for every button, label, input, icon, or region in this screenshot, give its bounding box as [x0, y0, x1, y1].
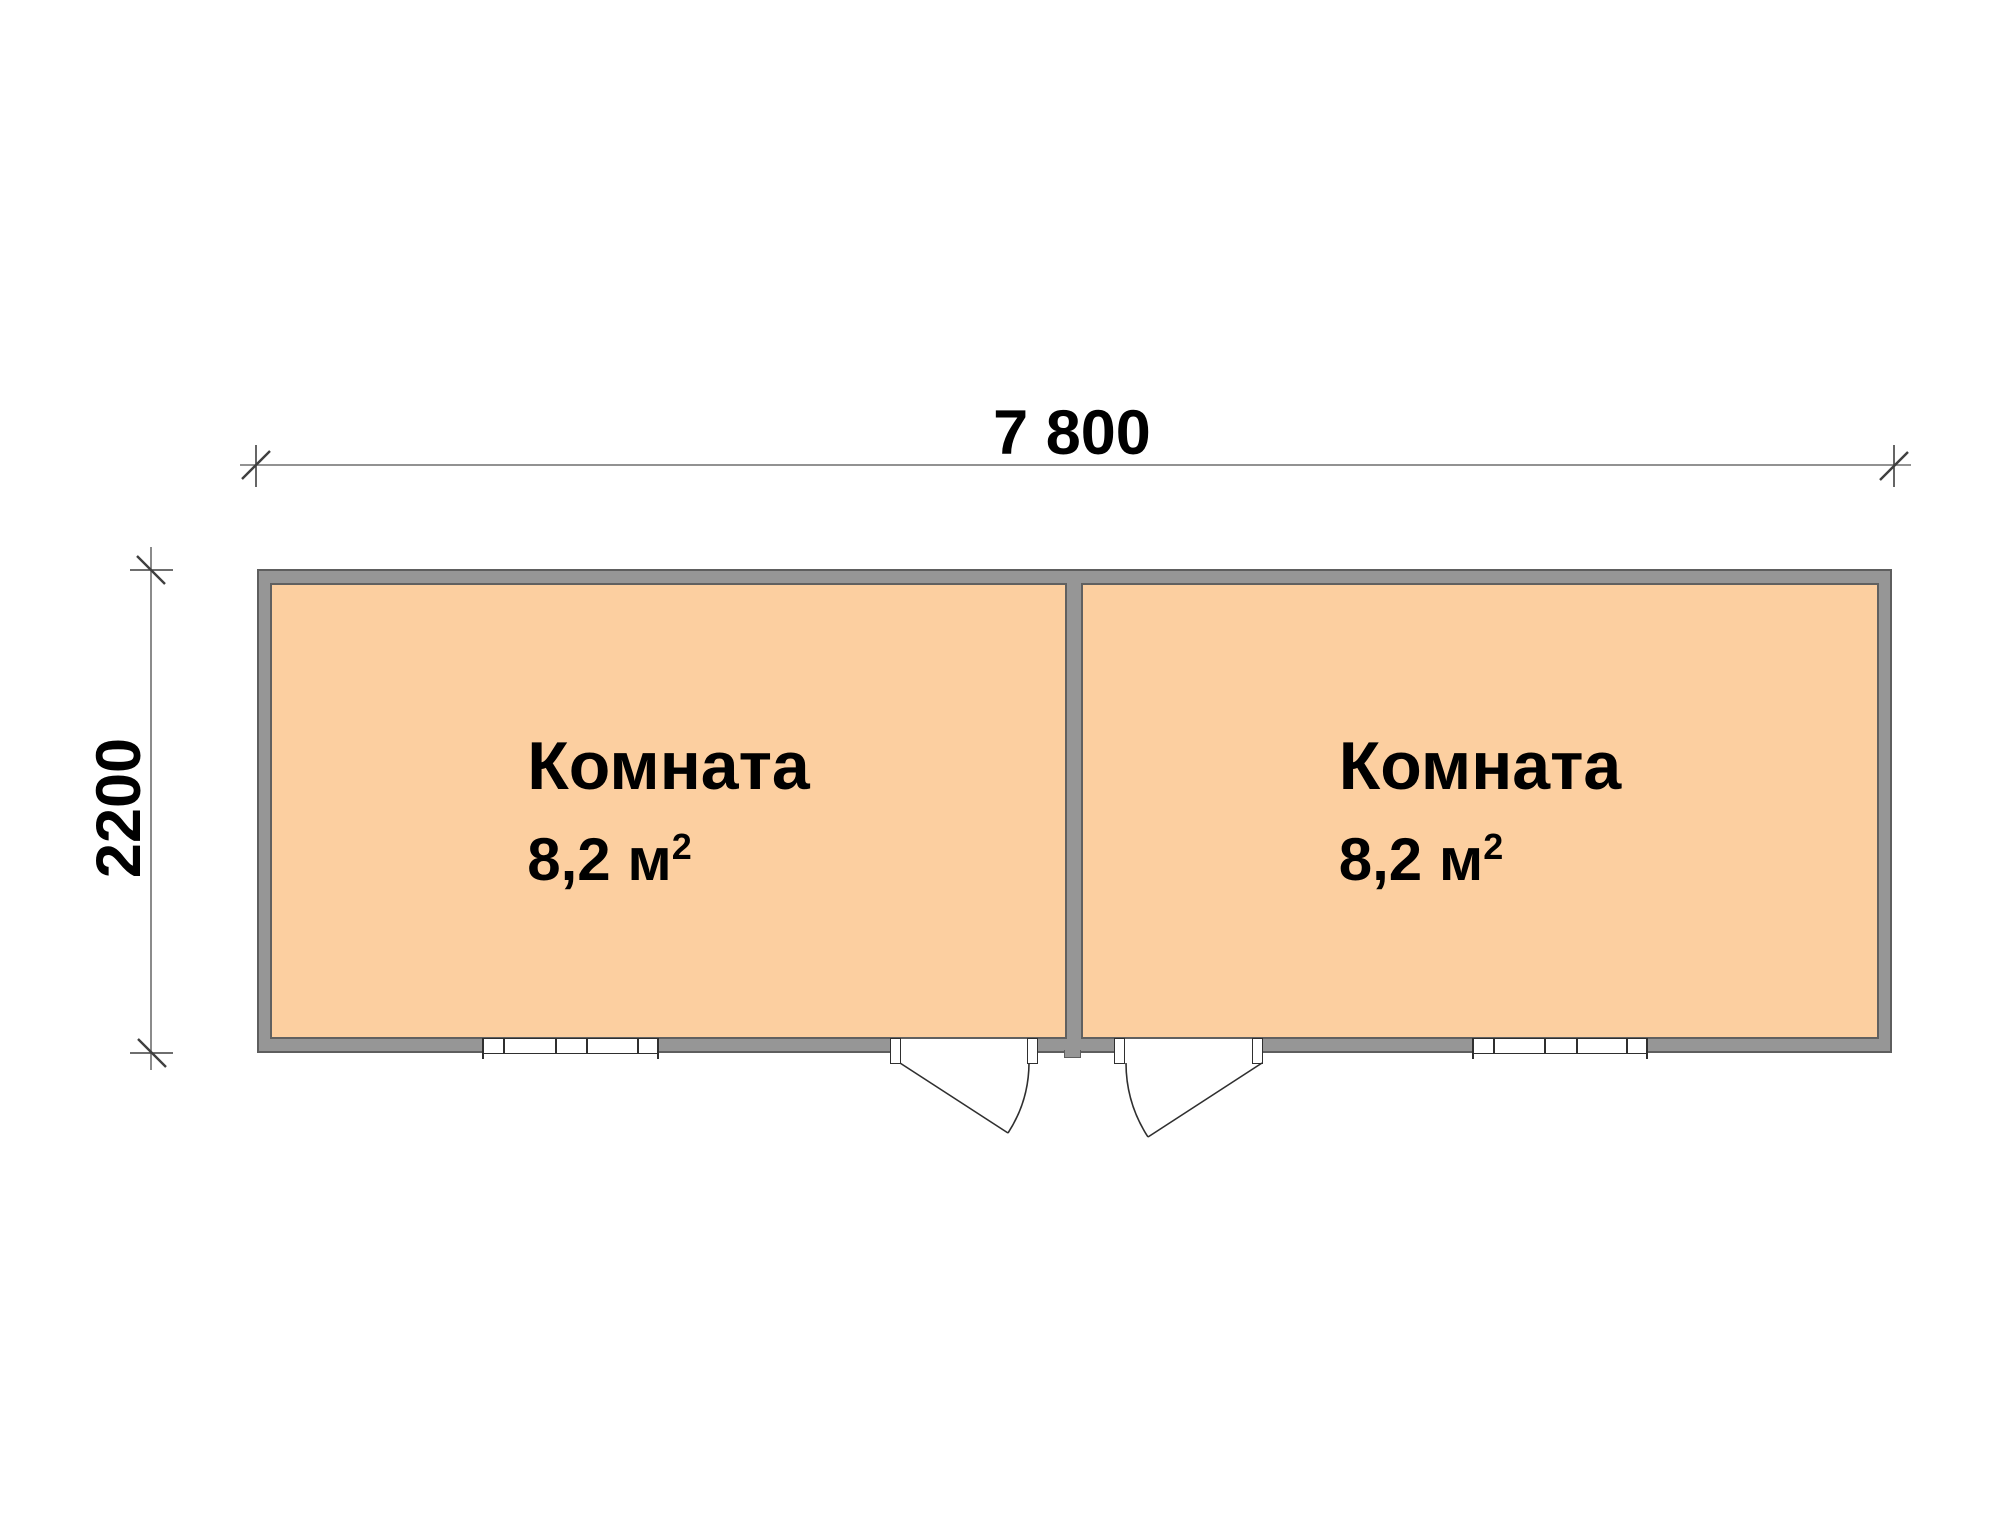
- door-swing-arc-left: [1008, 1063, 1029, 1133]
- linework-layer: [0, 0, 2000, 1538]
- dimension-height-label: 2200: [83, 738, 155, 878]
- door-leaf-left: [900, 1063, 1008, 1133]
- dimension-width-label: 7 800: [993, 397, 1151, 469]
- floor-plan: Комната 8,2 м2 Комната 8,2 м2: [0, 0, 2000, 1538]
- door-leaf-right: [1148, 1063, 1262, 1137]
- door-swing-arc-right: [1126, 1063, 1148, 1137]
